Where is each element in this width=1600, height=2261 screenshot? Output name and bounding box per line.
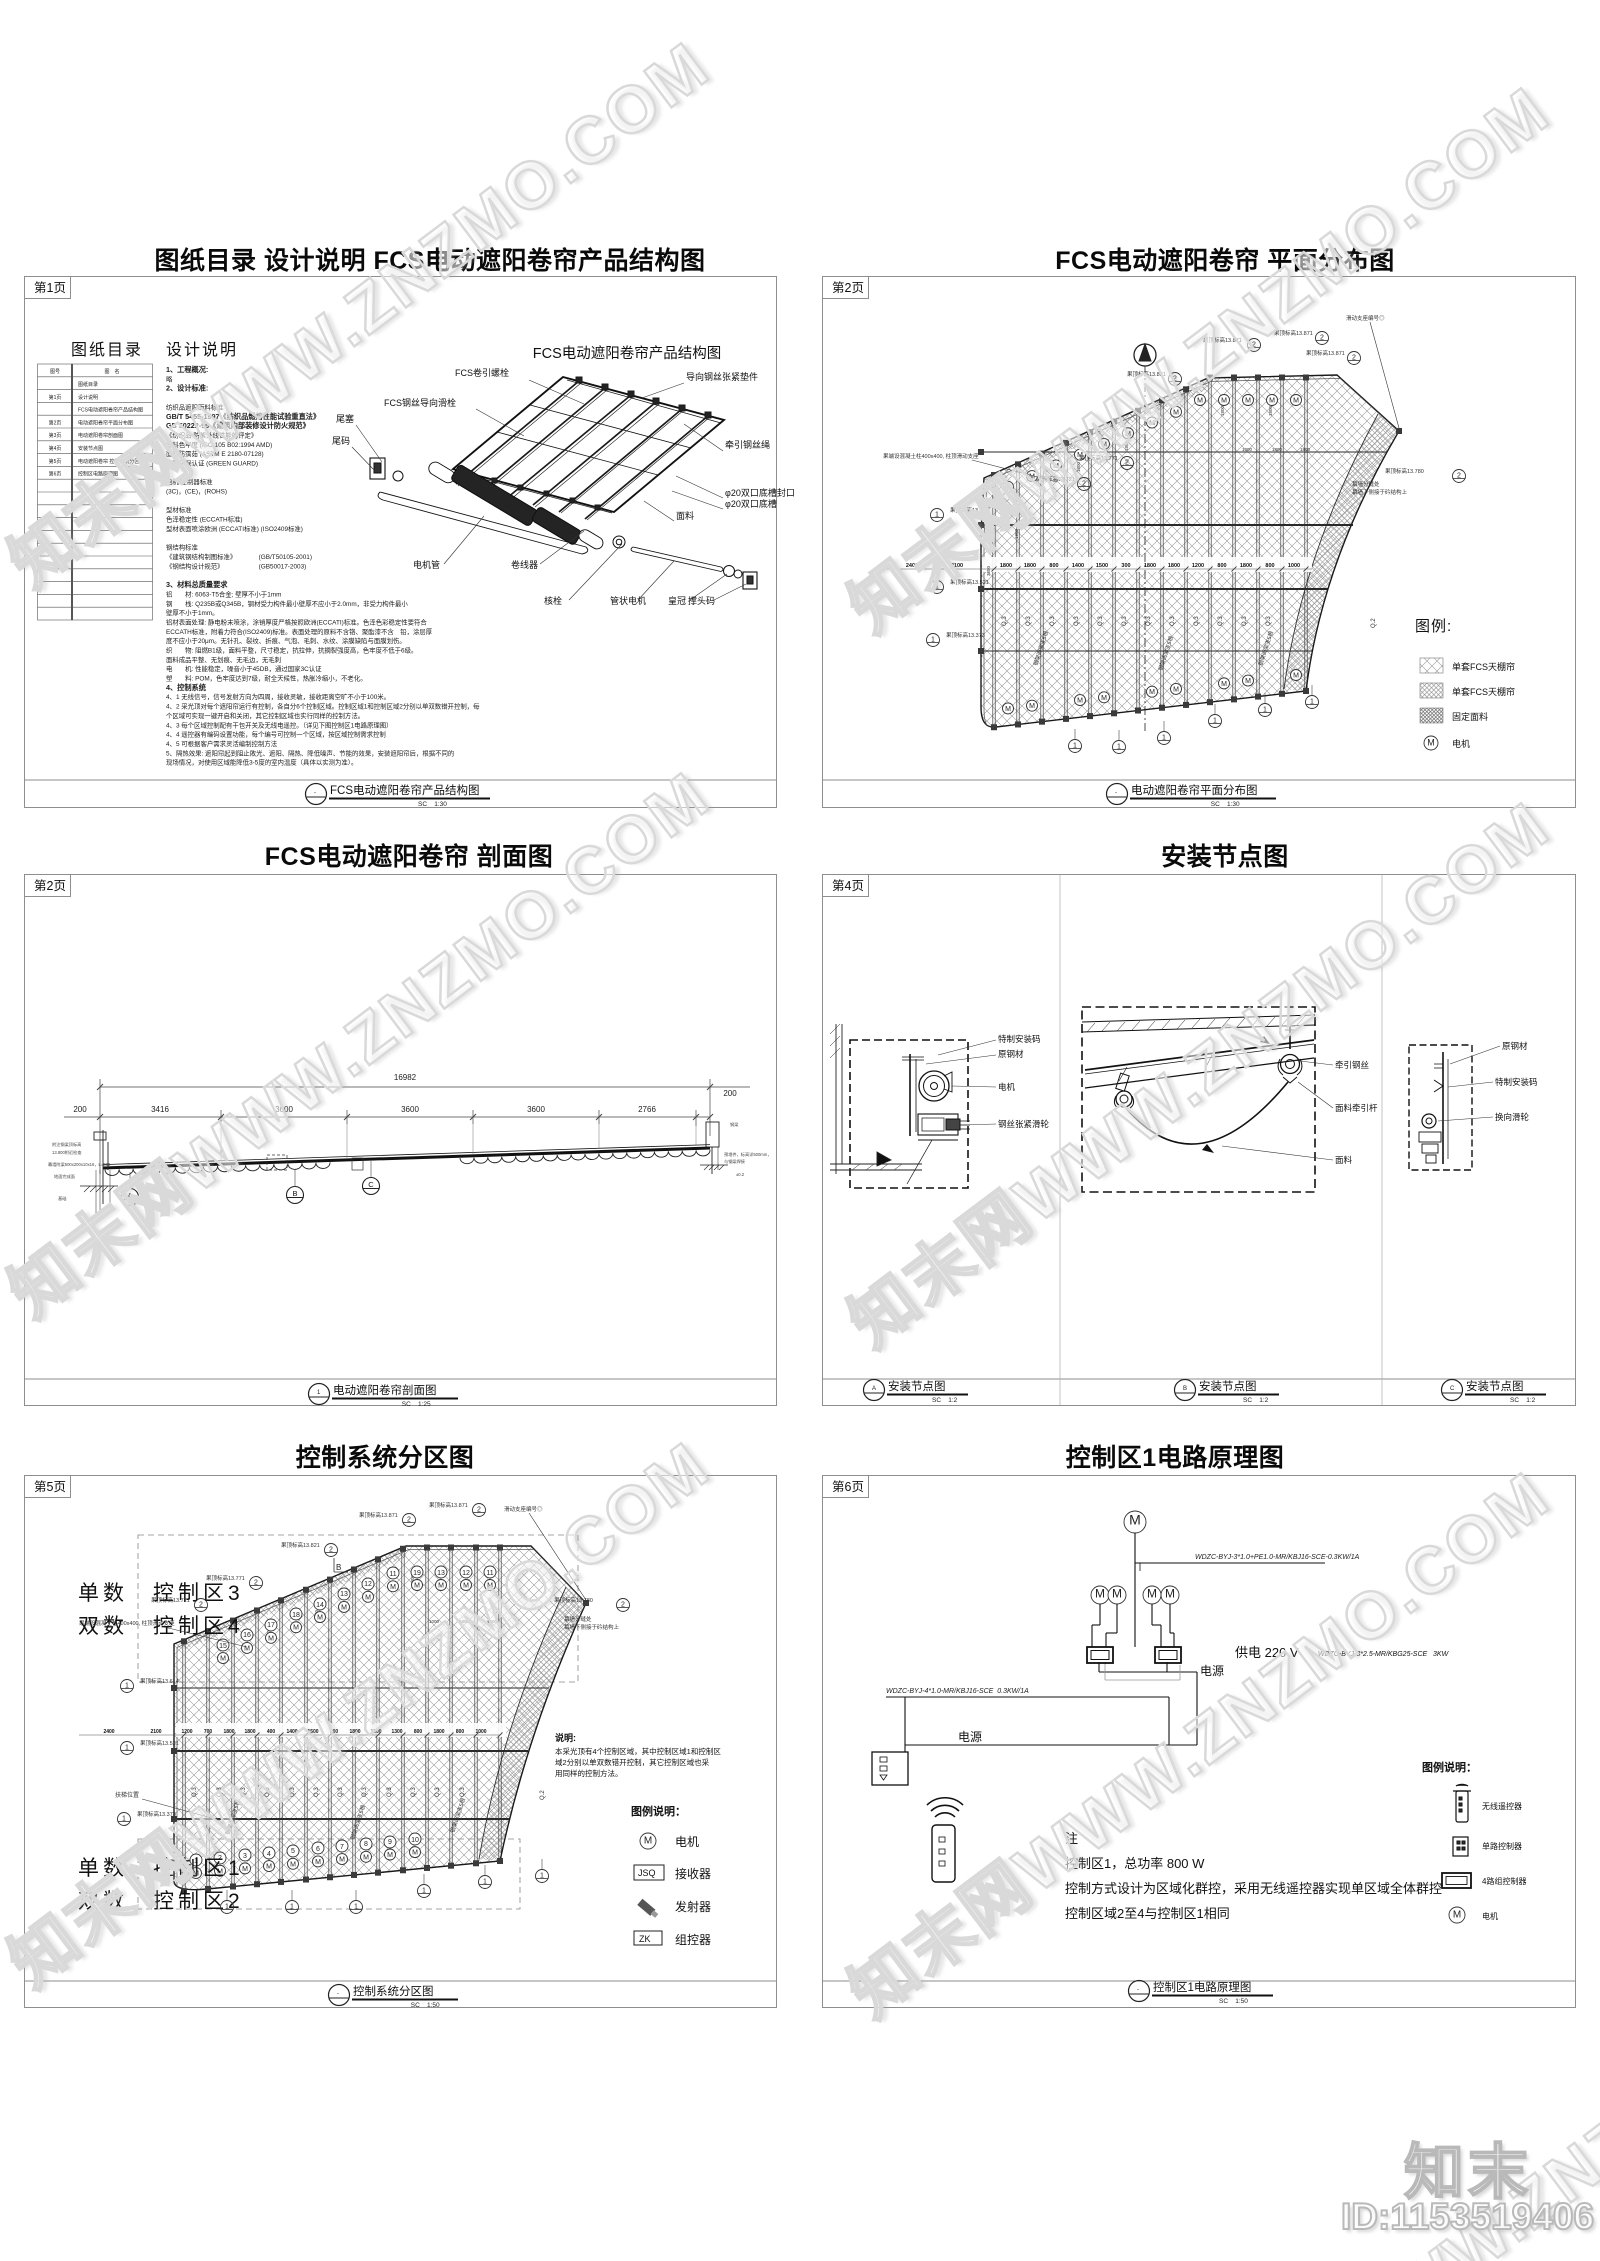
svg-text:M: M	[315, 1859, 321, 1866]
svg-text:M: M	[1293, 673, 1299, 680]
svg-text:电机管: 电机管	[413, 559, 440, 570]
svg-text:ECCATH标准，附着力符合(ISO2409)标准。表面处理: ECCATH标准，附着力符合(ISO2409)标准。表面处理的原料不含铬、聚酯漆…	[166, 627, 433, 636]
svg-text:2: 2	[1252, 342, 1256, 349]
svg-text:18: 18	[292, 1612, 300, 1619]
svg-text:1: 1	[354, 1904, 358, 1911]
svg-text:M: M	[1173, 409, 1179, 416]
svg-text:M: M	[644, 1836, 652, 1847]
svg-text:M: M	[390, 1584, 396, 1591]
svg-text:5、隔热效果: 遮阳帘起到阻止敗光、遮阳、隔热、降低噪声、节: 5、隔热效果: 遮阳帘起到阻止敗光、遮阳、隔热、降低噪声、节能的效果，安装遮阳帘…	[166, 748, 454, 757]
svg-text:M: M	[1149, 420, 1155, 427]
svg-text:Q.3: Q.3	[1026, 616, 1032, 626]
svg-text:M: M	[1173, 686, 1179, 693]
svg-text:SC 1:30: SC 1:30	[418, 801, 447, 808]
svg-text:1500: 1500	[1096, 563, 1108, 569]
svg-text:M: M	[414, 1583, 420, 1590]
svg-text:换向滑轮: 换向滑轮	[1495, 1112, 1530, 1122]
svg-text:扶梯位置: 扶梯位置	[115, 1791, 139, 1799]
svg-text:果顶标高13.821: 果顶标高13.821	[1127, 370, 1166, 378]
svg-text:1: 1	[125, 1683, 129, 1690]
svg-text:Q.3: Q.3	[1242, 616, 1248, 626]
svg-text:M: M	[268, 1635, 274, 1642]
svg-text:4: 4	[267, 1851, 271, 1858]
svg-text:面料: 面料	[676, 510, 694, 521]
svg-text:域2分别以单双数错开控制，其它控制区域也采: 域2分别以单双数错开控制，其它控制区域也采	[555, 1757, 710, 1767]
svg-text:1: 1	[422, 1888, 426, 1895]
svg-text:SC 1:25: SC 1:25	[402, 1401, 431, 1408]
svg-text:1: 1	[935, 512, 939, 519]
svg-text:第4页: 第4页	[832, 879, 864, 893]
svg-text:安装节点图: 安装节点图	[888, 1379, 946, 1393]
svg-text:1300: 1300	[391, 1729, 402, 1735]
svg-text:皇冠: 皇冠	[668, 595, 686, 606]
svg-text:电机: 电机	[1482, 1911, 1498, 1921]
svg-text:16982: 16982	[394, 1073, 417, 1082]
svg-text:M: M	[339, 1857, 345, 1864]
svg-text:安装节点图: 安装节点图	[78, 445, 103, 452]
svg-text:果顶标高13.871: 果顶标高13.871	[1274, 329, 1313, 337]
svg-text:1: 1	[317, 1390, 321, 1396]
svg-text:电动遮阳卷帘 控制系统分区图: 电动遮阳卷帘 控制系统分区图	[78, 458, 144, 465]
svg-text:GB/T 5455-1997《纺织品燃熔性能试验重直法》: GB/T 5455-1997《纺织品燃熔性能试验重直法》	[166, 412, 320, 421]
svg-text:撑头码: 撑头码	[688, 595, 715, 606]
svg-text:M: M	[1005, 484, 1011, 491]
svg-text:Q.3: Q.3	[217, 1787, 223, 1797]
svg-text:卷线器: 卷线器	[511, 559, 538, 570]
svg-text:800: 800	[1049, 563, 1058, 569]
svg-text:1800: 1800	[370, 1729, 381, 1735]
svg-text:Q.3: Q.3	[387, 1787, 393, 1797]
svg-text:Q.3: Q.3	[338, 1787, 344, 1797]
svg-text:1、工程概况:: 1、工程概况:	[166, 365, 208, 374]
svg-text:800: 800	[1217, 563, 1226, 569]
svg-text:1: 1	[1213, 718, 1217, 725]
svg-text:安装节点图: 安装节点图	[1466, 1379, 1524, 1393]
svg-text:1500: 1500	[307, 1729, 318, 1735]
svg-text:电机\控制器标准: 电机\控制器标准	[166, 477, 213, 486]
svg-text:M: M	[1221, 681, 1227, 688]
svg-text:M: M	[1245, 678, 1251, 685]
svg-text:钢结构标准: 钢结构标准	[166, 543, 199, 552]
svg-text:M: M	[1077, 698, 1083, 705]
svg-text:第1页: 第1页	[34, 281, 66, 295]
svg-text:Q.3: Q.3	[1050, 616, 1056, 626]
svg-text:色泽稳定性 (ECCATH标准): 色泽稳定性 (ECCATH标准)	[166, 515, 243, 524]
svg-text:第5页: 第5页	[49, 458, 62, 465]
svg-text:第3页: 第3页	[49, 432, 62, 439]
svg-text:1800: 1800	[1268, 405, 1273, 416]
svg-text:电动遮阳卷帘平面分布图: 电动遮阳卷帘平面分布图	[78, 419, 133, 426]
svg-text:幕墙下侧接于砛结构上: 幕墙下侧接于砛结构上	[1352, 488, 1408, 496]
svg-text:GB 50222-95《建筑内部装修设计防火规范》: GB 50222-95《建筑内部装修设计防火规范》	[166, 421, 310, 430]
svg-text:12: 12	[364, 1581, 372, 1588]
svg-text:1000: 1000	[429, 1619, 440, 1624]
svg-text:6: 6	[316, 1846, 320, 1853]
svg-text:1000: 1000	[1242, 447, 1253, 452]
svg-text:基础: 基础	[58, 1195, 66, 1202]
svg-text:预埋件，标高详500mm，: 预埋件，标高详500mm，	[724, 1151, 771, 1158]
svg-text:尾塞: 尾塞	[336, 413, 354, 424]
svg-text:200: 200	[73, 1105, 87, 1114]
svg-text:图例:: 图例:	[1415, 618, 1452, 635]
svg-text:4、3 每个区域控制配有干包开关及无线电遥控。（详见下图控制: 4、3 每个区域控制配有干包开关及无线电遥控。（详见下图控制区1电路原理图）	[166, 720, 393, 729]
svg-text:果顶标高13.780: 果顶标高13.780	[554, 1596, 593, 1604]
svg-text:Q.3: Q.3	[1266, 616, 1272, 626]
svg-text:M: M	[387, 1852, 393, 1859]
svg-text:M: M	[1453, 1910, 1461, 1921]
svg-text:15: 15	[219, 1643, 227, 1650]
svg-text:A: A	[872, 1386, 876, 1392]
svg-text:13.800附近检查: 13.800附近检查	[52, 1149, 82, 1156]
svg-text:安装节点图: 安装节点图	[1199, 1379, 1257, 1393]
svg-text:2: 2	[254, 1580, 258, 1587]
svg-text:控制方式设计为区域化群控，采用无线遥控器实现单区域全体群控: 控制方式设计为区域化群控，采用无线遥控器实现单区域全体群控	[1065, 1881, 1442, 1896]
svg-text:SC 1:50: SC 1:50	[411, 2002, 440, 2009]
svg-text:控制系统分区图: 控制系统分区图	[353, 1984, 434, 1998]
svg-text:电动遮阳卷帘剖面图: 电动遮阳卷帘剖面图	[333, 1383, 437, 1397]
svg-text:M: M	[1005, 706, 1011, 713]
svg-text:FCS卷引螺栓: FCS卷引螺栓	[455, 367, 509, 378]
svg-text:Q.3: Q.3	[1074, 616, 1080, 626]
svg-text:铝 材: 6063-T5合金; 壁厚不小于1mm: 铝 材: 6063-T5合金; 壁厚不小于1mm	[166, 589, 281, 598]
svg-text:1200: 1200	[181, 1729, 192, 1735]
svg-text:单路控制器: 单路控制器	[1482, 1841, 1522, 1851]
svg-text:1800: 1800	[1168, 563, 1180, 569]
svg-text:Q.3: Q.3	[1098, 616, 1104, 626]
svg-text:FCS电动遮阳卷帘产品结构图: FCS电动遮阳卷帘产品结构图	[533, 345, 722, 362]
svg-text:φ20双口底槽封口: φ20双口底槽封口	[725, 487, 795, 498]
svg-text:2: 2	[199, 1602, 203, 1609]
svg-text:第6页: 第6页	[49, 471, 62, 478]
svg-text:图例说明：: 图例说明：	[631, 1804, 686, 1818]
svg-text:B: B	[1183, 1386, 1187, 1392]
svg-text:2: 2	[329, 1547, 333, 1554]
svg-text:Q.3: Q.3	[1122, 616, 1128, 626]
svg-text:2: 2	[1352, 355, 1356, 362]
svg-text:面料色牢度 (ISO 105 B02:1994 AMD): 面料色牢度 (ISO 105 B02:1994 AMD)	[166, 440, 272, 449]
svg-text:1800: 1800	[244, 1729, 255, 1735]
svg-text:果顶标高13.780: 果顶标高13.780	[1385, 467, 1424, 475]
svg-text:塑 料: POM，色牢度达到7级，耐全天候性，热胀冷缩小，: 塑 料: POM，色牢度达到7级，耐全天候性，热胀冷缩小，不老化。	[166, 674, 367, 683]
svg-text:原钢材: 原钢材	[998, 1049, 1024, 1059]
svg-text:图 名: 图 名	[104, 368, 119, 375]
svg-text:Q.3: Q.3	[1194, 616, 1200, 626]
svg-text:M: M	[293, 1625, 299, 1632]
svg-text:1800: 1800	[1014, 528, 1019, 539]
svg-text:钢 栈: Q235B或Q345B，钢材受力构件最小壁厚不应: 钢 栈: Q235B或Q345B，钢材受力构件最小壁厚不应小于2.0mm，非受力…	[166, 599, 408, 608]
svg-text:3600: 3600	[401, 1105, 419, 1114]
svg-text:电 机: 性能稳定，噪音小于45DB，通过国家3C认证: 电 机: 性能稳定，噪音小于45DB，通过国家3C认证	[166, 664, 322, 673]
svg-text:M: M	[1125, 431, 1131, 438]
svg-text:型材表面喷涂欧洲 (ECCATI标准) (ISO2409标准: 型材表面喷涂欧洲 (ECCATI标准) (ISO2409标准)	[166, 524, 303, 533]
svg-text:B: B	[336, 1563, 341, 1572]
svg-text:2: 2	[1082, 481, 1086, 488]
svg-text:1: 1	[1073, 743, 1077, 750]
svg-text:B: B	[292, 1189, 297, 1198]
svg-text:单套FCS天棚帘: 单套FCS天棚帘	[1452, 661, 1515, 672]
svg-text:1200: 1200	[1192, 563, 1204, 569]
svg-text:SC 1:30: SC 1:30	[1211, 801, 1240, 808]
svg-text:M: M	[1165, 1587, 1175, 1601]
svg-text:2400: 2400	[906, 563, 918, 569]
svg-text:FCS电动遮阳卷帘产品结构图: FCS电动遮阳卷帘产品结构图	[330, 783, 480, 797]
svg-text:果顶标高13.871: 果顶标高13.871	[1203, 336, 1242, 344]
svg-text:果顶标高13.521: 果顶标高13.521	[950, 578, 989, 586]
svg-text:Q.3: Q.3	[1002, 616, 1008, 626]
svg-text:1800: 1800	[1124, 440, 1129, 451]
svg-text:核栓: 核栓	[544, 595, 562, 606]
svg-text:果顶标高13.373: 果顶标高13.373	[137, 1810, 176, 1818]
svg-text:面料: 面料	[1335, 1155, 1353, 1165]
svg-text:8: 8	[364, 1841, 368, 1848]
svg-text:滑动支座编号◎: 滑动支座编号◎	[504, 1505, 543, 1513]
svg-text:17: 17	[267, 1622, 275, 1629]
svg-text:1: 1	[540, 1873, 544, 1880]
svg-text:M: M	[487, 1583, 493, 1590]
svg-text:幕墙下侧接于砛结构上: 幕墙下侧接于砛结构上	[564, 1623, 620, 1631]
svg-text:M: M	[1245, 398, 1251, 405]
svg-text:5: 5	[291, 1848, 295, 1855]
svg-text:Q.3: Q.3	[241, 1787, 247, 1797]
svg-text:13: 13	[437, 1570, 445, 1577]
svg-text:无线遥控器: 无线遥控器	[1482, 1801, 1522, 1811]
svg-text:M: M	[1197, 398, 1203, 405]
svg-text:滑动支座编号◎: 滑动支座编号◎	[1346, 314, 1385, 322]
svg-text:幕墙分缝处: 幕墙分缝处	[1352, 480, 1380, 488]
svg-text:附注钢梁顶标高: 附注钢梁顶标高	[52, 1141, 81, 1148]
svg-text:2: 2	[1125, 460, 1129, 467]
svg-text:M: M	[1112, 1587, 1122, 1601]
svg-text:图号: 图号	[50, 369, 60, 375]
svg-text:2: 2	[407, 1517, 411, 1524]
svg-text:3、材料总质量要求: 3、材料总质量要求	[166, 580, 228, 589]
svg-text:1800: 1800	[1272, 447, 1283, 452]
svg-text:9: 9	[388, 1839, 392, 1846]
svg-text:Q.2: Q.2	[1371, 618, 1377, 628]
svg-text:10: 10	[411, 1837, 419, 1844]
svg-text:M: M	[1427, 738, 1435, 748]
svg-text:M: M	[266, 1864, 272, 1871]
svg-text:第4页: 第4页	[49, 445, 62, 452]
svg-text:电机: 电机	[998, 1082, 1016, 1092]
svg-text:M: M	[290, 1861, 296, 1868]
svg-text:1400: 1400	[286, 1729, 297, 1735]
svg-text:Q.3: Q.3	[290, 1787, 296, 1797]
svg-text:导向钢丝张紧垫件: 导向钢丝张紧垫件	[686, 371, 758, 382]
svg-text:设计说明: 设计说明	[78, 394, 98, 401]
svg-text:7: 7	[340, 1844, 344, 1851]
svg-text:第1页: 第1页	[49, 394, 62, 401]
svg-text:1800: 1800	[1076, 461, 1081, 472]
svg-text:SC 1:2: SC 1:2	[932, 1397, 958, 1404]
svg-text:织 物: 阻燃B1级，面料平整，尺寸稳定，抗拉伸，抗撊裂强: 织 物: 阻燃B1级，面料平整，尺寸稳定，抗拉伸，抗撊裂强度高，色牢度不低于6级…	[166, 646, 417, 655]
svg-text:地面完成面: 地面完成面	[54, 1173, 75, 1180]
svg-text:说明:: 说明:	[555, 1732, 576, 1743]
svg-text:发射器: 发射器	[675, 1899, 711, 1914]
svg-text:幕墙分缝处: 幕墙分缝处	[564, 1615, 592, 1623]
svg-text:面料环保认证 (GREEN GUARD): 面料环保认证 (GREEN GUARD)	[166, 459, 258, 468]
svg-text:Q.2: Q.2	[540, 1790, 546, 1800]
svg-text:Q.3: Q.3	[1170, 616, 1176, 626]
svg-text:3416: 3416	[151, 1105, 169, 1114]
svg-text:C: C	[368, 1180, 374, 1189]
svg-text:3600: 3600	[275, 1105, 293, 1114]
svg-text:果顶标高13.871: 果顶标高13.871	[429, 1501, 468, 1509]
svg-text:Q.3: Q.3	[435, 1787, 441, 1797]
svg-text:M: M	[1269, 398, 1275, 405]
svg-text:用同样的控制方法。: 用同样的控制方法。	[555, 1768, 623, 1778]
svg-text:特制安装码: 特制安装码	[998, 1034, 1041, 1044]
svg-text:19: 19	[413, 1570, 421, 1577]
svg-text:M: M	[220, 1656, 226, 1663]
svg-text:200: 200	[723, 1089, 737, 1098]
svg-text:牵引钢丝: 牵引钢丝	[1335, 1060, 1370, 1070]
svg-text:SC 1:2: SC 1:2	[1510, 1397, 1536, 1404]
svg-text:1: 1	[931, 637, 935, 644]
svg-text:果顶标高13.373: 果顶标高13.373	[946, 631, 985, 639]
svg-text:图纸目录: 图纸目录	[78, 381, 98, 388]
svg-text:WDZC-BYJ-4*1.0-MR/KBJ16-SCE 0: WDZC-BYJ-4*1.0-MR/KBJ16-SCE 0.3KW/1A	[886, 1688, 1029, 1695]
svg-text:尾码: 尾码	[332, 436, 350, 446]
svg-text:壁厚不小于1mm。: 壁厚不小于1mm。	[166, 608, 219, 617]
svg-text:1: 1	[225, 1904, 229, 1911]
svg-text:1: 1	[1263, 707, 1267, 714]
svg-text:组控器: 组控器	[675, 1933, 711, 1947]
svg-text:果顶标高13.771: 果顶标高13.771	[206, 1574, 245, 1582]
svg-text:1: 1	[125, 1745, 129, 1752]
svg-text:M: M	[1293, 398, 1299, 405]
svg-text:Q.3: Q.3	[460, 1787, 466, 1797]
svg-text:11: 11	[389, 1571, 396, 1578]
svg-text:2、设计标准:: 2、设计标准:	[166, 384, 208, 393]
svg-text:FCS钢丝导向滑栓: FCS钢丝导向滑栓	[384, 397, 456, 408]
svg-text:1: 1	[290, 1904, 294, 1911]
svg-text:800: 800	[1265, 563, 1274, 569]
svg-text:1800: 1800	[223, 1729, 234, 1735]
svg-text:2400: 2400	[103, 1729, 114, 1735]
svg-text:原钢材: 原钢材	[1502, 1041, 1528, 1051]
svg-text:1: 1	[1117, 744, 1121, 751]
svg-text:接收器: 接收器	[675, 1866, 711, 1881]
svg-text:4、5 可根据客户需求灵活编制控制方法: 4、5 可根据客户需求灵活编制控制方法	[166, 739, 278, 748]
svg-text:第2页: 第2页	[832, 281, 864, 295]
svg-text:ZK: ZK	[639, 1934, 651, 1944]
svg-text:M: M	[463, 1583, 469, 1590]
svg-text:控制区1，总功率 800 W: 控制区1，总功率 800 W	[1065, 1856, 1205, 1871]
svg-text:《钢结构设计规范》 (GB50017-2003): 《钢结构设计规范》 (GB50017-2003)	[166, 561, 306, 570]
svg-text:个区域可实现一键开启和关闭，其它控制区域也实行同样的控制方法: 个区域可实现一键开启和关闭，其它控制区域也实行同样的控制方法。	[166, 711, 364, 720]
svg-text:-: -	[1115, 790, 1117, 796]
svg-text:《建筑钢结构制图标准》 (GB/T50105-2001: 《建筑钢结构制图标准》 (GB/T50105-2001)	[166, 552, 312, 561]
svg-text:幕墙附梁500x200x10x16，L=300: 幕墙附梁500x200x10x16，L=300	[48, 1161, 111, 1168]
svg-text:与钢梁焊接: 与钢梁焊接	[724, 1158, 746, 1165]
svg-text:牵引钢丝绳: 牵引钢丝绳	[725, 439, 770, 450]
svg-text:M: M	[1053, 463, 1059, 470]
svg-text:2: 2	[1320, 335, 1324, 342]
svg-text:果顶标高13.821: 果顶标高13.821	[281, 1541, 320, 1549]
svg-text:果顶标高13.871: 果顶标高13.871	[1306, 349, 1345, 357]
svg-text:C: C	[1450, 1386, 1455, 1392]
svg-text:M: M	[1101, 441, 1107, 448]
svg-text:控制区电路原理图: 控制区电路原理图	[78, 471, 118, 478]
svg-text:果端设混凝土柱400x400, 柱顶滑动支座: 果端设混凝土柱400x400, 柱顶滑动支座	[883, 452, 979, 460]
svg-text:Q.3: Q.3	[1218, 616, 1224, 626]
svg-text:12: 12	[462, 1570, 470, 1577]
svg-text:1800: 1800	[487, 1619, 498, 1624]
svg-text:M: M	[1029, 703, 1035, 710]
svg-text:2766: 2766	[638, 1105, 656, 1114]
svg-text:2100: 2100	[951, 563, 963, 569]
svg-text:-: -	[337, 1991, 339, 1997]
svg-text:11: 11	[486, 1570, 493, 1577]
svg-text:电动遮阳卷帘平面分布图: 电动遮阳卷帘平面分布图	[1131, 783, 1258, 797]
svg-text:管状电机: 管状电机	[610, 595, 646, 606]
svg-text:4、1 无线信号，信号发射方向为四周，接收灵敏，接收距离空旷: 4、1 无线信号，信号发射方向为四周，接收灵敏，接收距离空旷不小于100米。	[166, 692, 390, 701]
svg-text:图例说明：: 图例说明：	[1422, 1760, 1477, 1774]
svg-text:M: M	[1147, 1587, 1157, 1601]
svg-text:800: 800	[456, 1729, 465, 1735]
svg-text:1: 1	[935, 584, 939, 591]
svg-text:图纸目录: 图纸目录	[71, 341, 143, 359]
svg-text:特制安装码: 特制安装码	[1495, 1077, 1538, 1087]
svg-text:略: 略	[166, 374, 173, 383]
svg-text:电机: 电机	[1452, 738, 1470, 749]
svg-text:1: 1	[483, 1879, 487, 1886]
svg-text:M: M	[1221, 398, 1227, 405]
svg-text:钢丝张紧滑轮: 钢丝张紧滑轮	[998, 1119, 1050, 1129]
svg-text:1800: 1800	[1144, 563, 1156, 569]
svg-text:±0.2: ±0.2	[736, 1172, 745, 1177]
svg-text:固定面料: 固定面料	[1452, 711, 1488, 722]
svg-text:Q.3: Q.3	[265, 1787, 271, 1797]
svg-text:面料防霟茹 (ASTM E 2180-07128): 面料防霟茹 (ASTM E 2180-07128)	[166, 449, 264, 458]
svg-text:850: 850	[986, 500, 991, 508]
svg-text:1800: 1800	[1000, 563, 1012, 569]
svg-text:2100: 2100	[150, 1729, 161, 1735]
svg-text:Q.3: Q.3	[411, 1787, 417, 1797]
svg-text:M: M	[1029, 474, 1035, 481]
svg-text:M: M	[438, 1583, 444, 1590]
svg-text:M: M	[1095, 1587, 1105, 1601]
svg-text:1: 1	[122, 1816, 126, 1823]
svg-text:控制区域2至4与控制区1相同: 控制区域2至4与控制区1相同	[1065, 1906, 1230, 1921]
svg-text:纺织品遮阳面料标准: 纺织品遮阳面料标准	[166, 402, 224, 411]
svg-text:果顶标高13.871: 果顶标高13.871	[359, 1511, 398, 1519]
svg-text:A: A	[127, 1191, 132, 1200]
svg-text:设计说明: 设计说明	[166, 341, 238, 359]
svg-text:φ20双口底槽: φ20双口底槽	[725, 498, 777, 509]
svg-text:果顶标高13.721: 果顶标高13.721	[151, 1596, 190, 1604]
svg-text:800: 800	[414, 1729, 423, 1735]
svg-text:1800: 1800	[1220, 405, 1225, 416]
svg-text:控制区1电路原理图: 控制区1电路原理图	[1153, 1980, 1251, 1994]
svg-text:注: 注	[1065, 1831, 1078, 1846]
svg-text:M: M	[1101, 695, 1107, 702]
svg-text:300: 300	[1121, 563, 1130, 569]
svg-text:1800: 1800	[433, 1729, 444, 1735]
svg-text:-: -	[314, 790, 316, 796]
svg-text:4、4 遥控器有编码设置功能，每个编号可控制一个区域，按区域: 4、4 遥控器有编码设置功能，每个编号可控制一个区域，按区域控制需求控制	[166, 730, 386, 739]
svg-text:《纺织品 防紫外线性能的评定》: 《纺织品 防紫外线性能的评定》	[166, 430, 257, 439]
svg-text:Q.3: Q.3	[362, 1787, 368, 1797]
svg-text:2: 2	[1457, 473, 1461, 480]
svg-text:3600: 3600	[527, 1105, 545, 1114]
svg-text:第2页: 第2页	[34, 879, 66, 893]
svg-text:4、2 采光顶对每个遮阳帘运行有控制，各自分6个控制区域。控: 4、2 采光顶对每个遮阳帘运行有控制，各自分6个控制区域。控制区域1和控制区域2…	[166, 702, 480, 711]
svg-text:M: M	[1149, 689, 1155, 696]
svg-text:果顶标高13.614: 果顶标高13.614	[140, 1677, 179, 1685]
svg-text:2: 2	[621, 1602, 625, 1609]
